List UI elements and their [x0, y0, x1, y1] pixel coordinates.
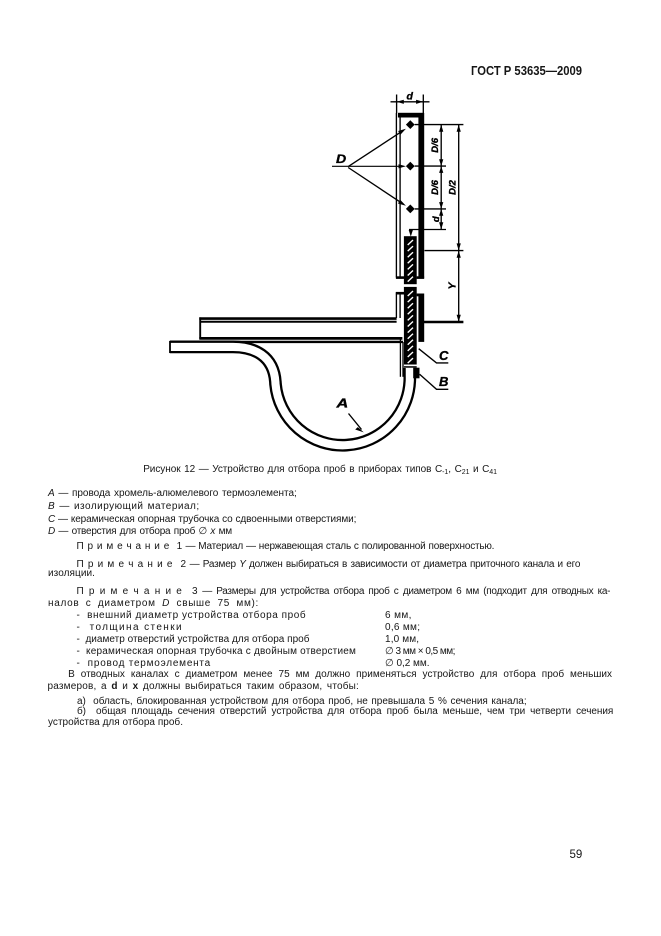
svg-text:D/6: D/6 — [430, 137, 441, 153]
svg-text:Y: Y — [447, 282, 459, 290]
svg-text:d: d — [407, 91, 414, 103]
svg-text:D: D — [336, 152, 346, 165]
svg-text:A: A — [335, 397, 348, 411]
svg-text:B: B — [439, 374, 448, 389]
svg-text:C: C — [439, 348, 449, 363]
svg-text:D/2: D/2 — [448, 179, 459, 195]
svg-text:d: d — [431, 216, 442, 222]
svg-text:D/6: D/6 — [430, 179, 441, 195]
